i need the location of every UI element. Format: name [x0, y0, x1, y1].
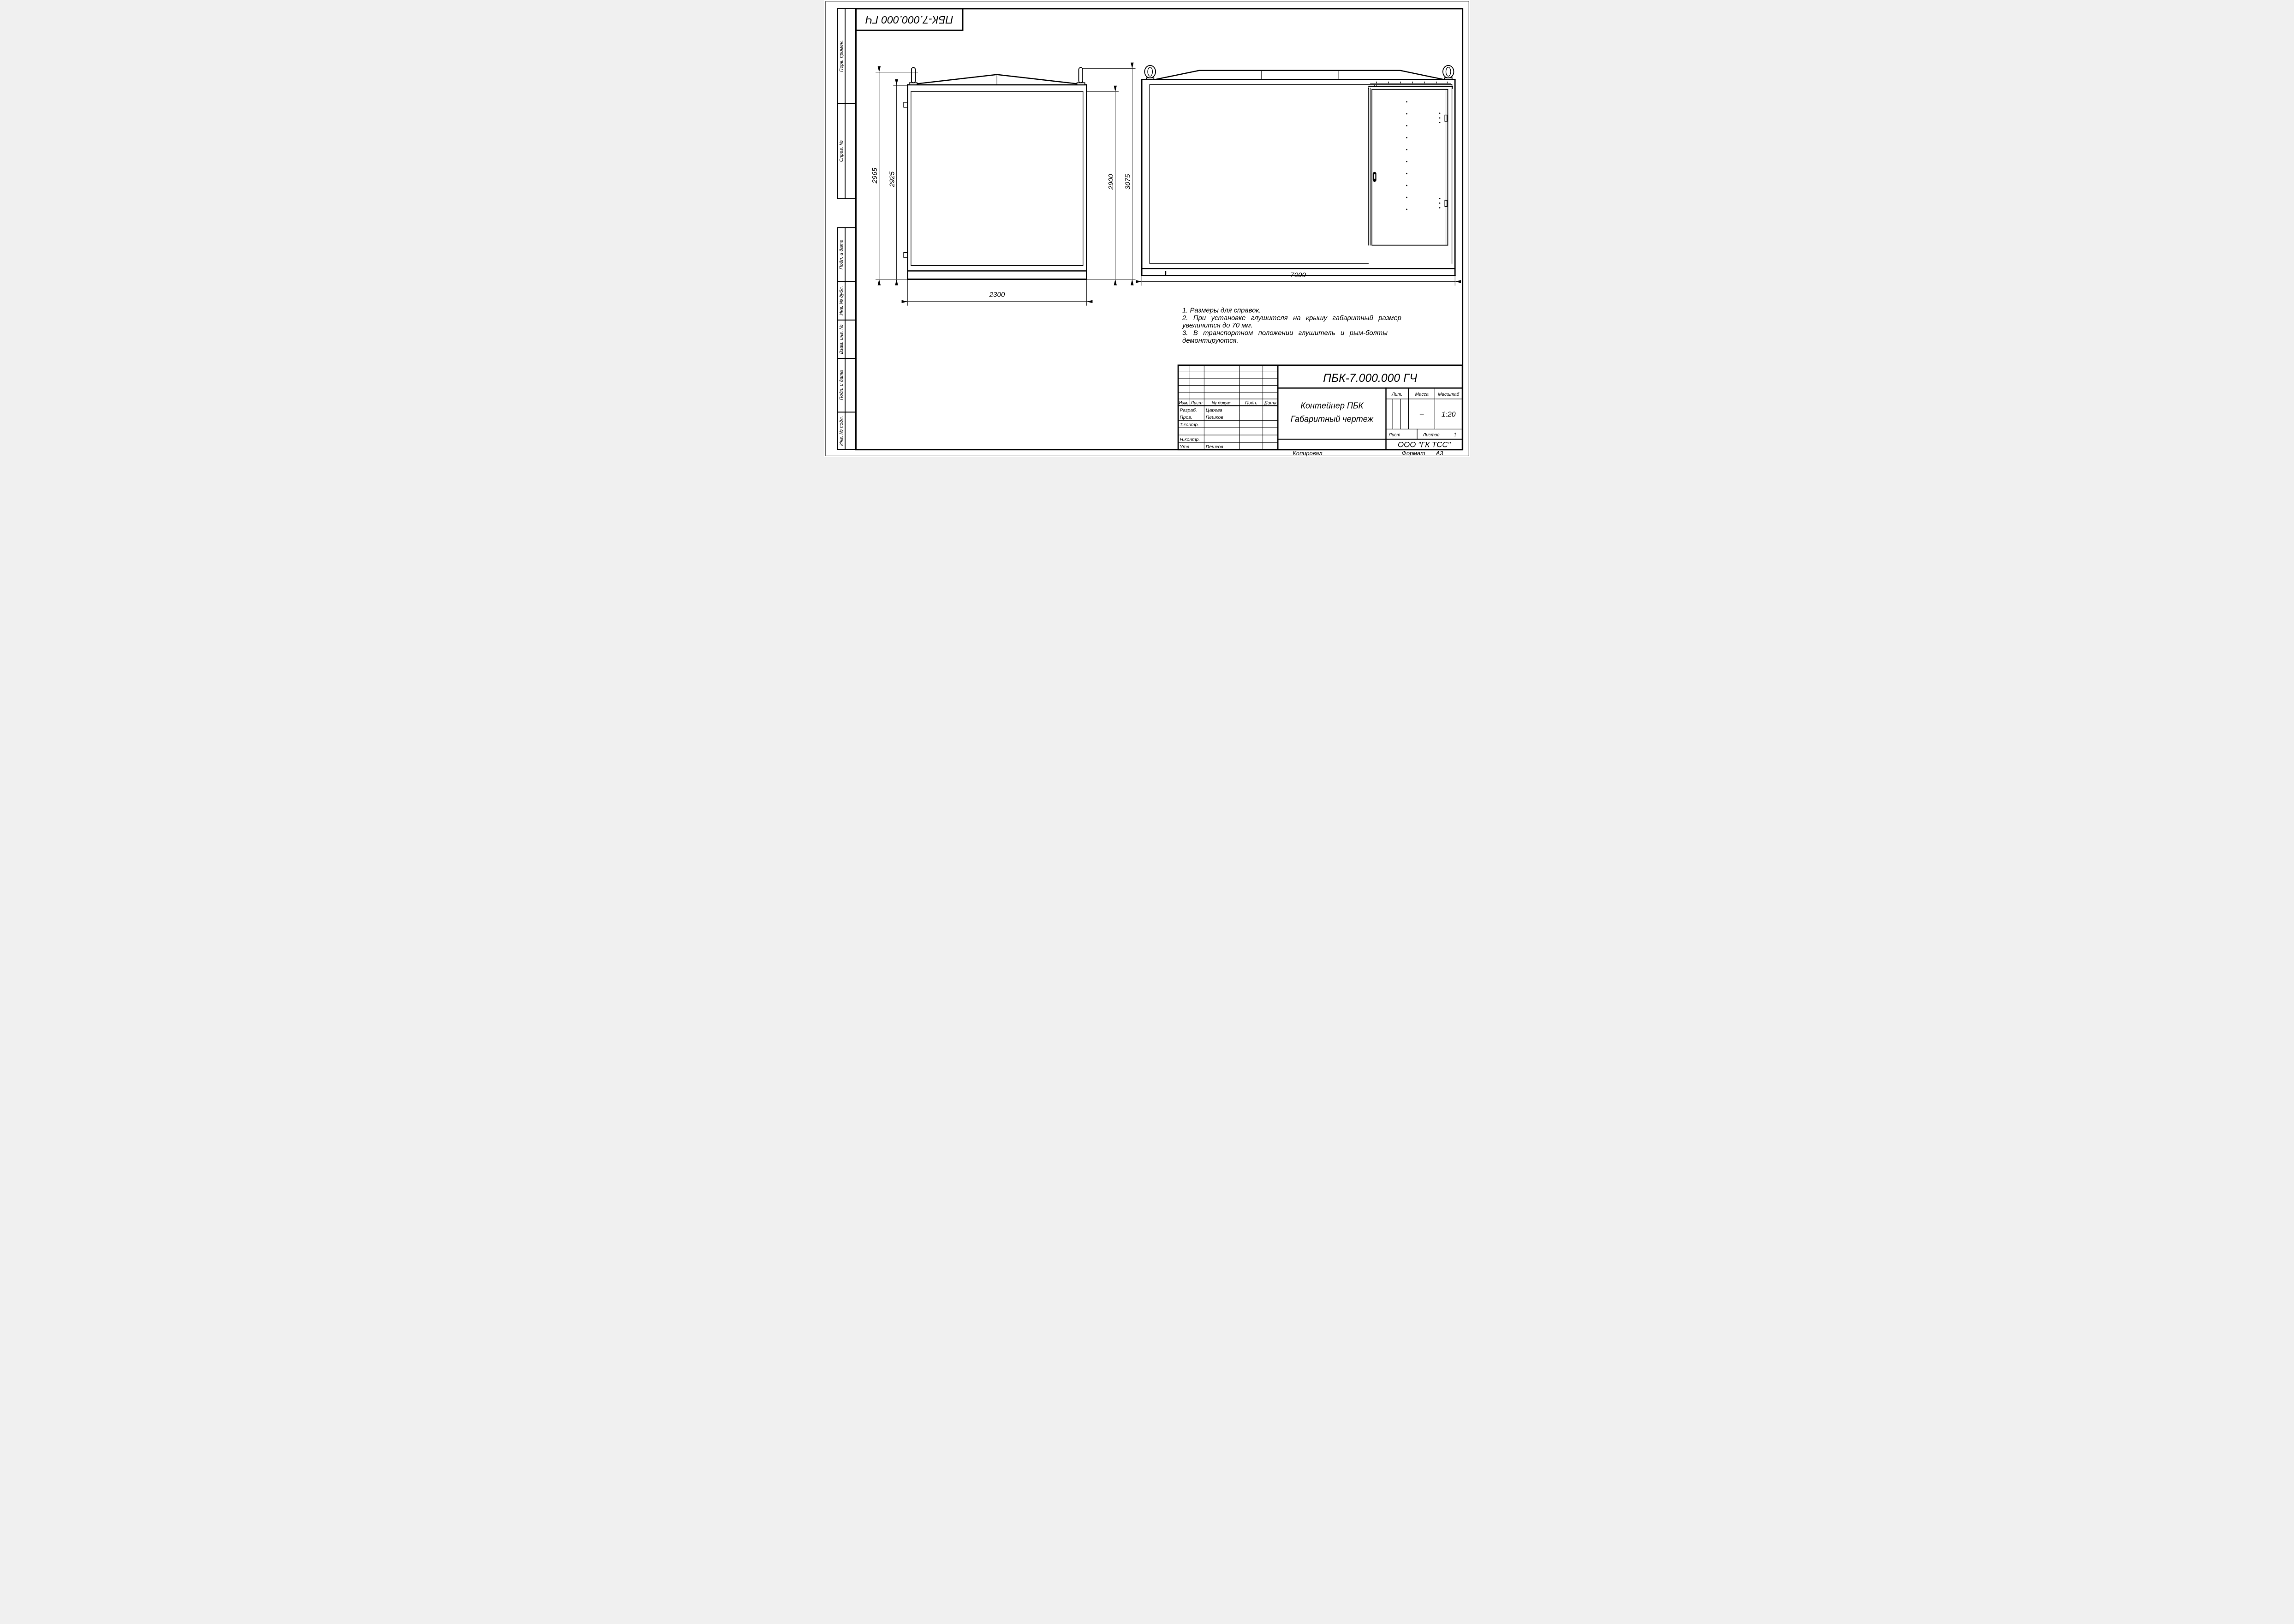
format-label: Формат — [1401, 450, 1425, 457]
list-label: Лист — [1388, 433, 1400, 438]
row-nkontr-label: Н.контр. — [1180, 437, 1200, 442]
margin-label-vzam-inv: Взам. инв. № — [839, 324, 844, 354]
lit-label: Лит. — [1391, 392, 1402, 397]
note-line-3: увеличится до 70 мм. — [1182, 322, 1253, 329]
note-line-5: демонтируются. — [1182, 337, 1239, 345]
row-utv-name: Пешков — [1205, 445, 1223, 450]
door-handle-icon — [1372, 172, 1376, 182]
dim-3075: 3075 — [1124, 174, 1132, 190]
title-name-line2: Габаритный чертеж — [1290, 415, 1374, 424]
masshtab-value: 1:20 — [1441, 410, 1455, 418]
title-company: ООО "ГК ТСС" — [1398, 440, 1451, 449]
side-view-door — [1368, 82, 1452, 245]
massa-value: – — [1419, 410, 1424, 418]
margin-label-inv-dubl: Инв. № дубл. — [838, 286, 844, 315]
note-line-4: 3. В транспортном положении глушитель и … — [1182, 329, 1388, 337]
dim-2965: 2965 — [870, 167, 878, 184]
drawing-sheet: Перв. примен. Справ. № Подп. и дата Инв.… — [824, 0, 1470, 457]
dim-7000: 7000 — [1290, 271, 1306, 279]
listov-label: Листов — [1422, 433, 1439, 438]
margin-label-podp-data-2: Подп. и дата — [839, 370, 844, 400]
col-podp: Подп. — [1245, 400, 1257, 405]
margin-label-perv-primen: Перв. примен. — [839, 40, 844, 72]
dim-2300: 2300 — [989, 291, 1005, 299]
col-data: Дата — [1263, 400, 1276, 405]
col-list: Лист — [1190, 400, 1203, 405]
margin-label-inv-podl: Инв. № подл. — [839, 416, 844, 446]
title-doc-number: ПБК-7.000.000 ГЧ — [1323, 372, 1417, 385]
col-dokum: № докум. — [1211, 400, 1232, 405]
masshtab-label: Масштаб — [1438, 392, 1460, 397]
copied-label: Копировал — [1293, 450, 1323, 457]
eye-bolt-icon — [1078, 67, 1083, 83]
dim-2900: 2900 — [1107, 174, 1114, 190]
row-utv-label: Утв. — [1179, 445, 1191, 450]
row-prov-name: Пешков — [1205, 415, 1223, 420]
row-razrab-label: Разраб. — [1180, 407, 1197, 413]
note-line-1: 1. Размеры для справок. — [1182, 307, 1261, 314]
dim-2925: 2925 — [888, 171, 896, 187]
door-leaf — [1372, 89, 1448, 245]
title-name-line1: Контейнер ПБК — [1300, 401, 1364, 410]
row-tkontr-label: Т.контр. — [1180, 422, 1199, 428]
row-razrab-name: Царева — [1205, 408, 1222, 413]
col-izm: Изм. — [1179, 400, 1188, 405]
format-value: А3 — [1435, 450, 1443, 457]
eye-bolt-icon — [911, 67, 915, 83]
margin-label-sprav-no: Справ. № — [839, 140, 844, 162]
massa-label: Масса — [1415, 392, 1429, 397]
listov-value: 1 — [1454, 432, 1456, 438]
margin-label-podp-data-1: Подп. и дата — [839, 239, 844, 269]
note-line-2: 2. При установке глушителя на крышу габа… — [1182, 315, 1401, 322]
row-prov-label: Пров. — [1180, 415, 1192, 420]
top-doc-number-text: ПБК-7.000.000 ГЧ — [865, 14, 953, 26]
